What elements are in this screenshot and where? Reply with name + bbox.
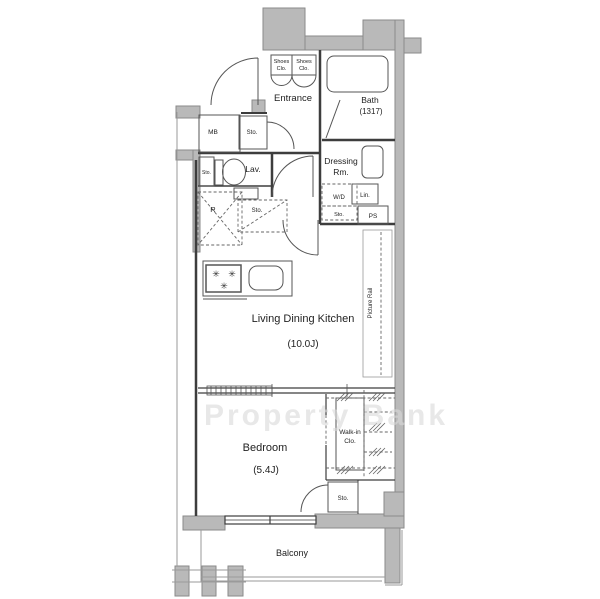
label-bedroom-size: (5.4J)	[253, 465, 279, 476]
watermark-text: Property Bank	[204, 399, 448, 432]
shoes-closet-2	[292, 55, 316, 75]
wall-top-middle	[305, 36, 363, 50]
label-wic-line2: Clo.	[344, 438, 356, 445]
label-bath-size: (1317)	[359, 107, 382, 116]
wall-bottom-left-block	[183, 516, 225, 530]
wall-right	[395, 20, 404, 518]
label-shoes2-line1: Shoes	[296, 59, 312, 65]
label-balcony: Balcony	[276, 548, 309, 558]
toilet-cistern	[215, 160, 223, 185]
label-bath: Bath	[361, 95, 379, 105]
stove-burners: ✳ ✳ ✳	[212, 269, 236, 291]
fridge-cross	[198, 192, 242, 245]
bath-door-diagonal	[326, 100, 340, 138]
label-shoes1-line1: Shoes	[274, 59, 290, 65]
floorplan-image: ✳ ✳ ✳ Property Bank Shoes Clo. Shoes Clo…	[0, 0, 600, 599]
label-washer-storage: Sto.	[334, 212, 344, 218]
fixtures	[199, 55, 392, 512]
bathtub	[327, 56, 388, 92]
label-mb: MB	[208, 129, 218, 136]
wall-left-stub-top	[176, 106, 200, 118]
hall-door-arc-2	[283, 220, 318, 255]
hall-door-arc-1	[272, 156, 313, 197]
label-lav-storage: Sto.	[202, 170, 211, 176]
label-wic-line1: Walk-in	[339, 429, 361, 436]
balcony-window	[225, 516, 316, 524]
shoes-closet-1	[271, 55, 292, 75]
meter-box	[199, 115, 240, 152]
wall-bottom-right-thick	[384, 492, 404, 516]
label-fridge: R	[210, 205, 216, 214]
label-pipe-space: PS	[369, 213, 378, 220]
burner-icon: ✳	[220, 281, 228, 291]
burner-icon: ✳	[212, 269, 220, 279]
labels: Shoes Clo. Shoes Clo. Entrance Bath (131…	[202, 59, 383, 558]
label-lav: Lav.	[245, 164, 260, 174]
floorplan-svg: ✳ ✳ ✳ Property Bank Shoes Clo. Shoes Clo…	[0, 0, 600, 599]
label-entrance: Entrance	[274, 93, 312, 104]
label-shoes2-line2: Clo.	[299, 66, 309, 72]
label-kitchen-storage: Sto.	[252, 208, 263, 214]
toilet-bowl	[223, 159, 246, 185]
balcony-right-column	[385, 528, 400, 583]
label-bedroom-storage: Sto.	[338, 496, 349, 502]
label-entrance-storage: Sto.	[247, 130, 258, 136]
shoes-closet-2-doors	[292, 75, 316, 87]
label-ldk-size: (10.0J)	[287, 339, 318, 350]
entrance-door-arc	[211, 58, 258, 105]
wall-top-left-block	[263, 8, 305, 50]
dashed-markings	[198, 184, 395, 478]
washbasin	[362, 146, 383, 178]
label-bedroom: Bedroom	[243, 442, 288, 454]
label-ldk: Living Dining Kitchen	[252, 313, 355, 325]
entrance-storage-door-arc	[267, 122, 294, 149]
label-dressing-line1: Dressing	[324, 156, 358, 166]
kitchen-storage-diagonal	[238, 200, 287, 232]
label-linen: Lin.	[360, 193, 370, 199]
label-dressing-line2: Rm.	[333, 167, 349, 177]
shoes-closet-1-doors	[271, 75, 292, 86]
bedroom-storage-door-arc	[301, 485, 328, 512]
label-shoes1-line2: Clo.	[277, 66, 287, 72]
burner-icon: ✳	[228, 269, 236, 279]
label-picture-rail: Picture Rail	[368, 288, 374, 319]
kitchen-sink	[249, 266, 283, 290]
label-washer-dryer: W/D	[333, 195, 345, 201]
